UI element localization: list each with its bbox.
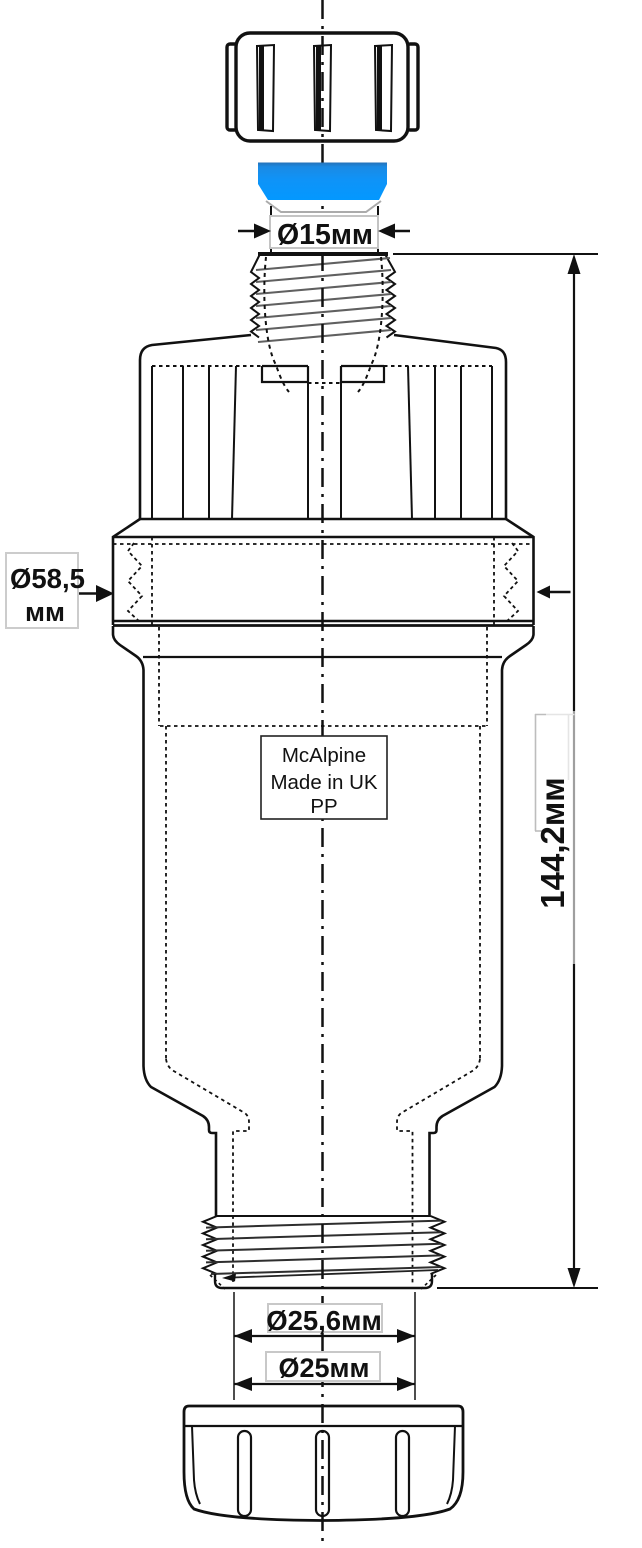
svg-text:мм: мм bbox=[25, 597, 65, 627]
svg-text:Ø25мм: Ø25мм bbox=[279, 1353, 370, 1383]
svg-text:Ø15мм: Ø15мм bbox=[277, 219, 373, 251]
svg-text:144,2мм: 144,2мм bbox=[534, 777, 571, 908]
svg-text:Ø25,6мм: Ø25,6мм bbox=[266, 1305, 382, 1336]
svg-text:Ø58,5: Ø58,5 bbox=[10, 563, 85, 594]
svg-text:McAlpine: McAlpine bbox=[282, 744, 366, 767]
svg-text:PP: PP bbox=[310, 795, 337, 818]
svg-text:Made in UK: Made in UK bbox=[270, 771, 377, 794]
